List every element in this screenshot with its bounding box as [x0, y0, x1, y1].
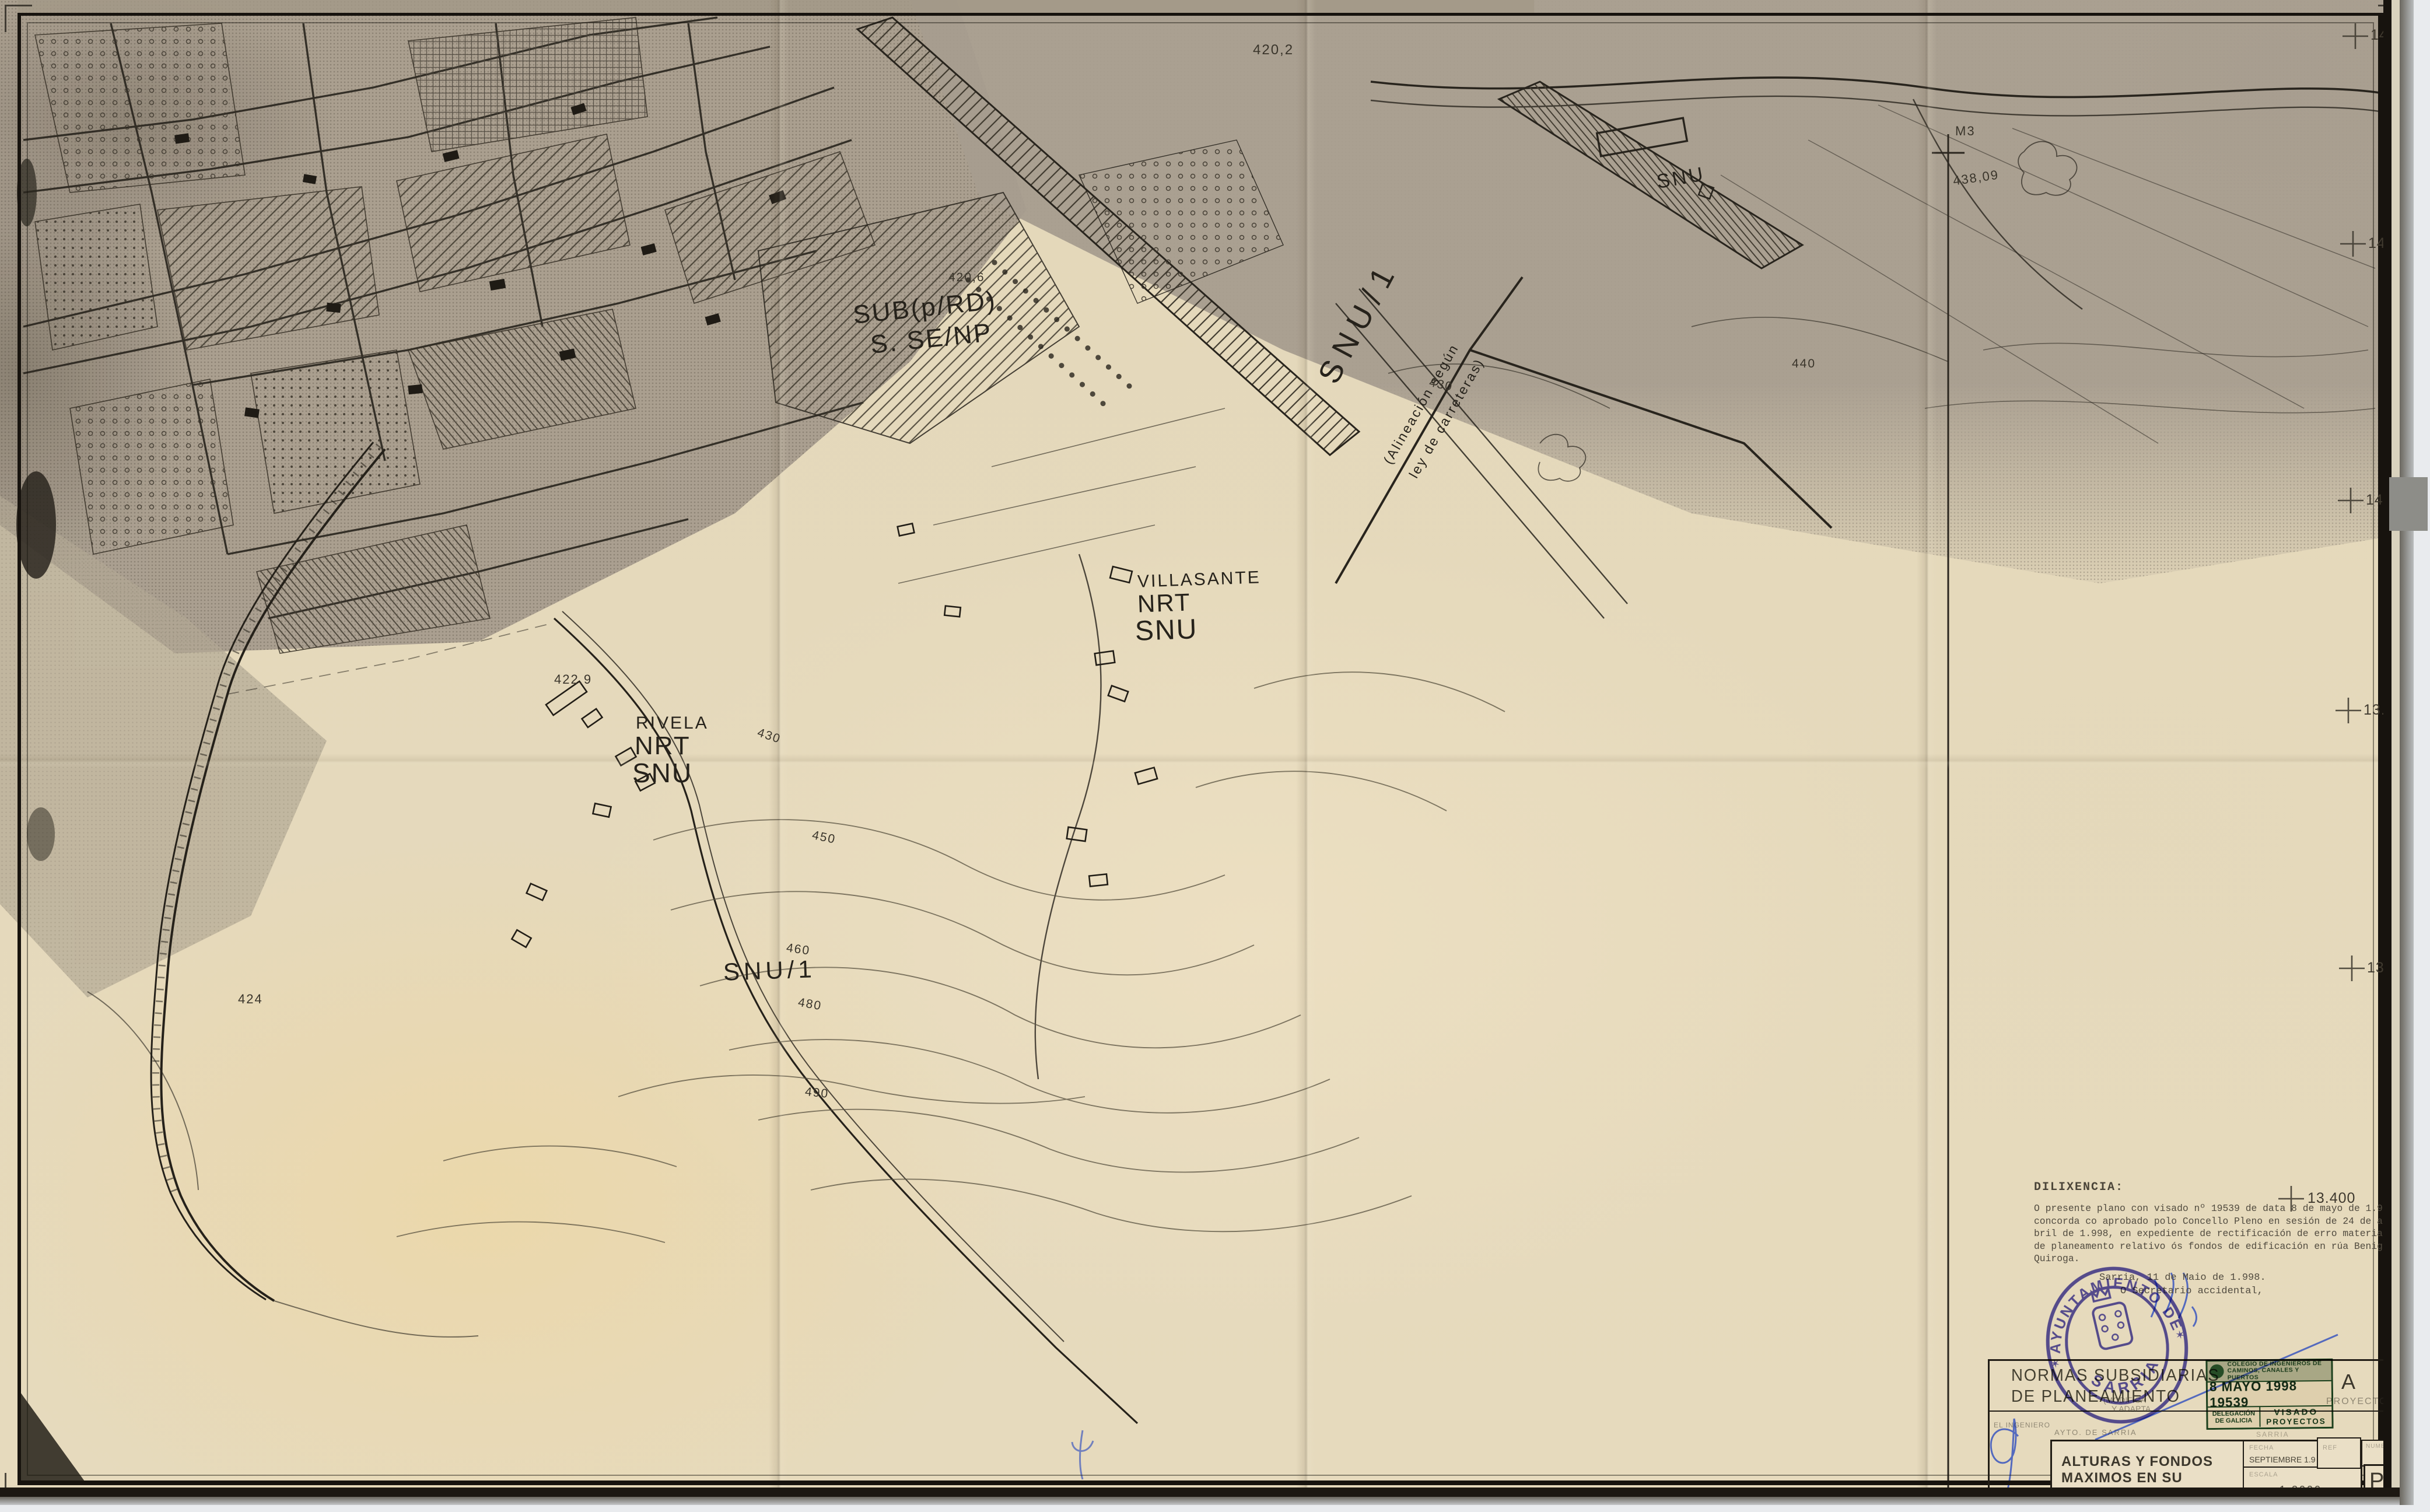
- contour-label: 440: [1792, 357, 1816, 371]
- sheet-edge-right-paper: [2392, 0, 2400, 1512]
- titleblock-ref-cell: [2317, 1437, 2361, 1469]
- diligencia-line: de planeamento relativo ós fondos de edi…: [2034, 1240, 2404, 1253]
- escala-header: ESCALA: [2249, 1471, 2278, 1478]
- spot-elevation: 420,6: [948, 271, 985, 285]
- delegacion-line1: DELEGACIÓN: [2212, 1410, 2255, 1417]
- backing-right: [2414, 0, 2430, 1512]
- zone-label-rivela-snu: SNU: [632, 759, 692, 787]
- delegacion-line2: DE GALICIA: [2215, 1417, 2253, 1424]
- corner-mark: [5, 5, 32, 32]
- stamp-star-left: ✶: [2049, 1357, 2061, 1371]
- spot-elevation: 420,2: [1253, 42, 1294, 58]
- diligencia-line: O presente plano con visado nº 19539 de …: [2034, 1202, 2404, 1215]
- spot-elevation: 424: [238, 992, 263, 1007]
- map-sheet: SUB(p/RD) S. SE/NP SNU SNU/1 (Alineación…: [0, 0, 2413, 1508]
- visa-date-number: 8 MAYO 1998 19539: [2210, 1377, 2330, 1410]
- plan-title-line1: ALTURAS Y FONDOS: [2061, 1454, 2213, 1470]
- diligencia-line: bril de 1.998, en expediente de rectific…: [2034, 1227, 2404, 1240]
- place-label-villasante: VILLASANTE: [1137, 568, 1262, 591]
- spot-elevation: 422.9: [554, 672, 592, 687]
- titleblock-rule: [1988, 1359, 1990, 1491]
- titleblock-rule: [2243, 1440, 2244, 1491]
- college-logo-icon: [2210, 1364, 2224, 1378]
- stamp-date-row: 8 MAYO 1998 19539: [2208, 1381, 2331, 1408]
- proyectos-label: PROYECTOS: [2266, 1416, 2326, 1426]
- zone-label-villasante-nrt: NRT: [1137, 589, 1191, 617]
- sheet-shadow-bottom: [0, 1497, 2400, 1505]
- college-visa-stamp: COLEGIO DE INGENIEROS DE CAMINOS, CANALE…: [2205, 1359, 2333, 1430]
- fecha-header: FECHA: [2249, 1444, 2274, 1451]
- ref-header: REF: [2323, 1444, 2337, 1451]
- sheet-edge-bottom-dark: [0, 1487, 2400, 1497]
- sheet-edge-right-dark: [2383, 0, 2392, 1512]
- tape-fragment: [2389, 477, 2428, 531]
- zone-label-snu1-large: SNU/1: [723, 956, 816, 985]
- zone-label-villasante-snu: SNU: [1135, 615, 1198, 646]
- contour-label: 490: [804, 1085, 829, 1101]
- corner-letter: A: [2341, 1370, 2355, 1394]
- survey-point-label: M3: [1955, 124, 1976, 139]
- place-label-rivela: RIVELA: [636, 714, 709, 732]
- diligencia-heading: DILIXENCIA:: [2034, 1181, 2407, 1194]
- fecha-value: SEPTIEMBRE 1.9: [2249, 1455, 2316, 1464]
- sheet-shadow-right: [2400, 0, 2414, 1512]
- map-border-inner-line: [27, 22, 2374, 1476]
- titleblock-engineer-label: EL INGENIERO: [1994, 1421, 2050, 1429]
- diligencia-line: concorda co aprobado polo Concello Pleno…: [2034, 1215, 2404, 1228]
- plan-title-line2: MAXIMOS EN SU: [2061, 1470, 2183, 1486]
- scanned-planning-map: { "map": { "zones": { "sub1": "SUB(p/RD)…: [0, 0, 2430, 1512]
- zone-label-rivela-nrt: NRT: [635, 733, 691, 759]
- titleblock-sarria-faint: SARRIA: [2256, 1430, 2289, 1438]
- backing-bottom: [0, 1505, 2430, 1512]
